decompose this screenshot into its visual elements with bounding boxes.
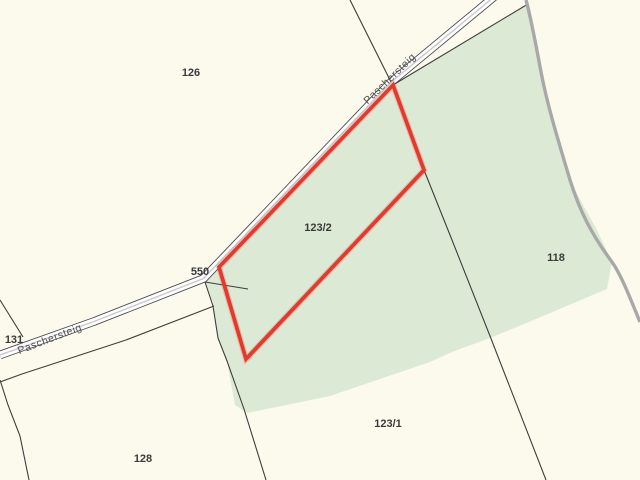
svg-text:131: 131 <box>5 334 23 346</box>
svg-text:126: 126 <box>182 67 200 79</box>
svg-text:123/1: 123/1 <box>374 418 402 430</box>
svg-text:123/2: 123/2 <box>304 222 332 234</box>
svg-text:128: 128 <box>134 453 152 465</box>
svg-text:550: 550 <box>191 266 209 278</box>
svg-text:118: 118 <box>547 252 565 264</box>
